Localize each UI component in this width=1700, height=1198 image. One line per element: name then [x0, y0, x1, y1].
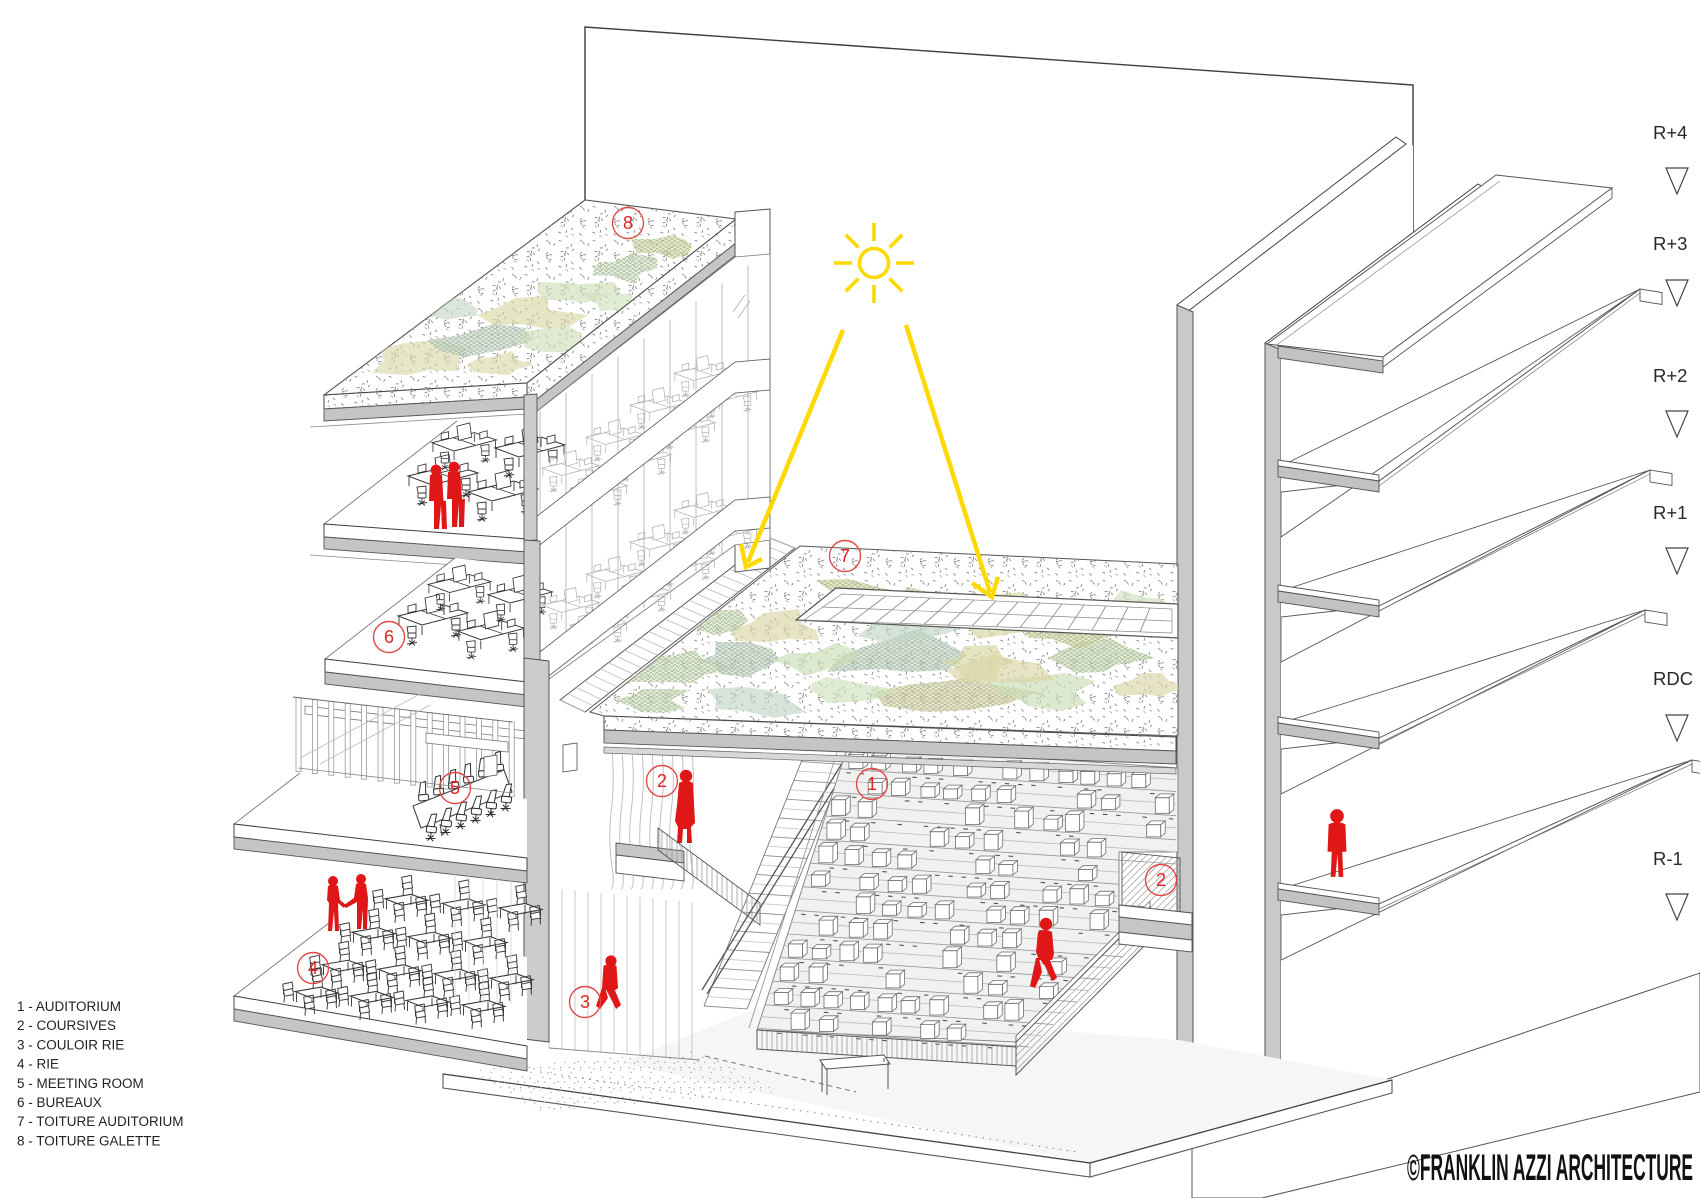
svg-text:R+2: R+2	[1653, 365, 1687, 386]
svg-text:2: 2	[1156, 870, 1166, 890]
svg-text:2 - COURSIVES: 2 - COURSIVES	[17, 1018, 116, 1033]
svg-text:6 - BUREAUX: 6 - BUREAUX	[17, 1095, 102, 1110]
svg-text:RDC: RDC	[1653, 668, 1693, 689]
svg-text:5 - MEETING ROOM: 5 - MEETING ROOM	[17, 1076, 144, 1091]
svg-text:5: 5	[450, 778, 460, 798]
svg-text:R+4: R+4	[1653, 122, 1687, 143]
svg-text:R+3: R+3	[1653, 233, 1687, 254]
svg-text:R+1: R+1	[1653, 502, 1687, 523]
svg-text:7: 7	[840, 546, 850, 566]
svg-text:6: 6	[384, 627, 394, 647]
svg-text:1: 1	[867, 774, 877, 794]
svg-text:2: 2	[657, 771, 667, 791]
svg-text:3: 3	[580, 992, 590, 1012]
svg-text:3 - COULOIR RIE: 3 - COULOIR RIE	[17, 1037, 124, 1052]
svg-text:7 - TOITURE AUDITORIUM: 7 - TOITURE AUDITORIUM	[17, 1114, 184, 1129]
svg-text:©FRANKLIN AZZI ARCHITECTURE: ©FRANKLIN AZZI ARCHITECTURE	[1407, 1147, 1693, 1188]
svg-text:R-1: R-1	[1653, 848, 1683, 869]
svg-text:4 - RIE: 4 - RIE	[17, 1057, 59, 1072]
svg-text:8 - TOITURE GALETTE: 8 - TOITURE GALETTE	[17, 1133, 161, 1148]
svg-text:4: 4	[308, 958, 318, 978]
svg-text:1 - AUDITORIUM: 1 - AUDITORIUM	[17, 999, 121, 1014]
svg-text:8: 8	[623, 213, 633, 233]
